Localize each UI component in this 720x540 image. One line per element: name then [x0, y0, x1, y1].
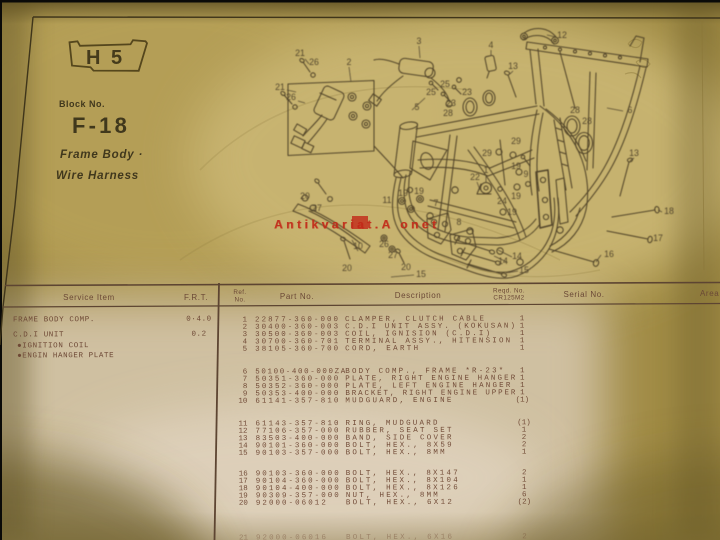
svg-text:21: 21	[295, 48, 305, 58]
svg-text:(1): (1)	[516, 397, 530, 405]
svg-text:Part No.: Part No.	[280, 292, 314, 301]
svg-text:10: 10	[238, 398, 248, 406]
svg-text:19: 19	[511, 191, 521, 201]
svg-text:No.: No.	[235, 297, 246, 304]
svg-text:20: 20	[300, 191, 310, 201]
svg-text:26: 26	[286, 92, 296, 102]
svg-text:20: 20	[239, 500, 249, 508]
svg-text:24: 24	[497, 196, 507, 206]
svg-text:19: 19	[398, 188, 408, 198]
svg-text:2: 2	[522, 533, 527, 540]
svg-text:C.D.I UNIT: C.D.I UNIT	[13, 331, 64, 339]
svg-text:Area C: Area C	[700, 289, 720, 298]
svg-text:11: 11	[382, 195, 391, 205]
svg-text:29: 29	[482, 148, 492, 158]
svg-text:14: 14	[512, 251, 522, 261]
svg-text:61141-357-810: 61141-357-810	[255, 397, 339, 405]
svg-text:8: 8	[457, 217, 462, 227]
svg-text:92000-06012: 92000-06012	[256, 499, 326, 507]
svg-text:14: 14	[498, 256, 508, 266]
svg-text:FRAME BODY COMP.: FRAME BODY COMP.	[13, 316, 95, 324]
svg-text:19: 19	[511, 161, 521, 171]
svg-text:15: 15	[239, 450, 249, 458]
svg-text:92000-06016: 92000-06016	[256, 534, 327, 540]
svg-text:20: 20	[401, 262, 411, 272]
svg-text:12: 12	[557, 30, 567, 40]
svg-text:MUDGUARD, ENGINE: MUDGUARD, ENGINE	[345, 397, 452, 405]
svg-text:13: 13	[508, 61, 518, 71]
svg-text:(2): (2)	[518, 499, 532, 507]
svg-text:Wire Harness: Wire Harness	[56, 170, 139, 182]
svg-text:Block No.: Block No.	[59, 99, 105, 109]
svg-text:Service Item: Service Item	[63, 293, 115, 302]
svg-text:0.2: 0.2	[191, 331, 206, 339]
svg-text:90103-357-000: 90103-357-000	[256, 449, 340, 457]
svg-text:15: 15	[519, 265, 529, 275]
svg-text:0·4.0: 0·4.0	[186, 316, 212, 324]
svg-text:1: 1	[522, 449, 527, 457]
svg-text:CR125M2: CR125M2	[493, 295, 524, 302]
svg-text:28: 28	[570, 105, 580, 115]
svg-text:1: 1	[484, 165, 489, 175]
svg-text:23: 23	[462, 87, 472, 97]
svg-text:16: 16	[604, 249, 614, 259]
svg-text:21: 21	[239, 534, 249, 540]
svg-text:5: 5	[415, 102, 420, 112]
svg-text:Serial No.: Serial No.	[563, 290, 604, 299]
svg-text:Reqd. No.: Reqd. No.	[493, 288, 525, 295]
svg-text:Frame Body ·: Frame Body ·	[60, 149, 143, 161]
svg-text:28: 28	[582, 116, 592, 126]
svg-text:3: 3	[417, 36, 422, 46]
svg-text:27: 27	[312, 203, 322, 213]
svg-text:19: 19	[414, 186, 424, 196]
svg-text:H 5: H 5	[86, 47, 125, 69]
svg-text:23: 23	[446, 98, 456, 108]
svg-text:25: 25	[426, 87, 436, 97]
svg-text:19: 19	[507, 207, 517, 217]
svg-text:F.R.T.: F.R.T.	[184, 293, 208, 302]
svg-text:20: 20	[342, 263, 352, 273]
svg-text:BOLT, HEX., 6X16: BOLT, HEX., 6X16	[346, 534, 453, 540]
svg-text:5: 5	[243, 346, 248, 354]
svg-text:6: 6	[628, 105, 633, 115]
svg-text:38105-360-700: 38105-360-700	[255, 345, 339, 353]
svg-text:F-18: F-18	[72, 113, 130, 138]
svg-text:27: 27	[388, 250, 398, 260]
svg-text:Ref.: Ref.	[233, 289, 246, 296]
svg-text:4: 4	[489, 40, 494, 50]
svg-text:BOLT, HEX., 8MM: BOLT, HEX., 8MM	[346, 449, 446, 457]
svg-text:●ENGIN HANGER PLATE: ●ENGIN HANGER PLATE	[17, 352, 114, 360]
svg-text:21: 21	[275, 82, 285, 92]
svg-text:13: 13	[629, 148, 639, 158]
svg-text:CORD, EARTH: CORD, EARTH	[345, 345, 418, 353]
svg-text:9: 9	[524, 169, 529, 179]
svg-text:26: 26	[379, 239, 389, 249]
svg-text:17: 17	[653, 233, 663, 243]
svg-text:1: 1	[520, 345, 525, 353]
svg-text:2: 2	[347, 57, 352, 67]
svg-text:●IGNITION COIL: ●IGNITION COIL	[17, 342, 89, 350]
svg-text:10: 10	[353, 241, 363, 251]
svg-text:28: 28	[443, 108, 453, 118]
svg-text:26: 26	[309, 57, 319, 67]
svg-text:Description: Description	[395, 291, 442, 300]
svg-text:25: 25	[440, 79, 450, 89]
svg-text:7: 7	[434, 198, 439, 208]
svg-text:22: 22	[470, 172, 480, 182]
svg-text:18: 18	[664, 206, 674, 216]
svg-text:29: 29	[511, 136, 521, 146]
svg-text:15: 15	[416, 269, 426, 279]
